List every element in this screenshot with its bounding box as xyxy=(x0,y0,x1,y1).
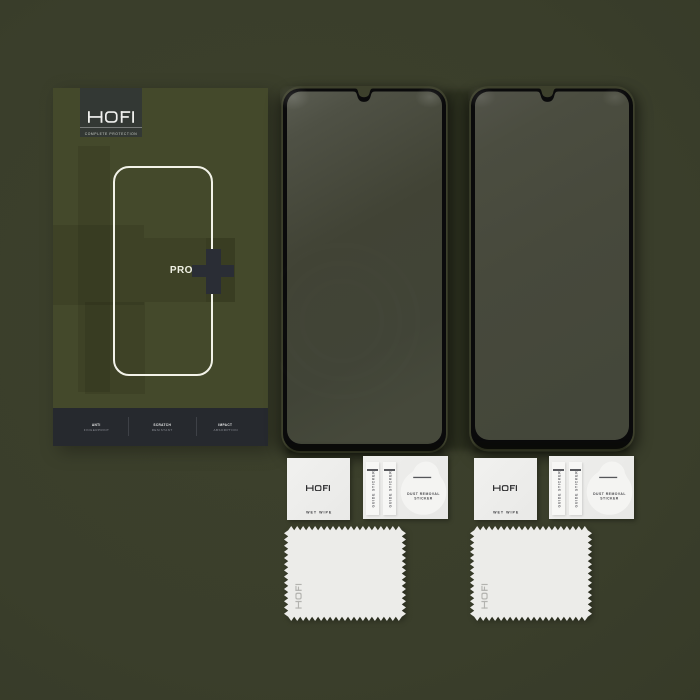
svg-text:STICKER: STICKER xyxy=(414,496,432,500)
svg-text:GUIDE STICKER: GUIDE STICKER xyxy=(371,470,375,507)
svg-text:DUST REMOVAL: DUST REMOVAL xyxy=(407,492,440,496)
svg-text:DUST REMOVAL: DUST REMOVAL xyxy=(593,492,626,496)
svg-text:GUIDE STICKER: GUIDE STICKER xyxy=(574,470,578,507)
svg-text:STICKER: STICKER xyxy=(600,496,618,500)
svg-text:WET WIPE: WET WIPE xyxy=(493,511,519,515)
svg-text:GUIDE STICKER: GUIDE STICKER xyxy=(388,470,392,507)
svg-text:WET WIPE: WET WIPE xyxy=(306,511,332,515)
svg-text:GUIDE STICKER: GUIDE STICKER xyxy=(557,470,561,507)
